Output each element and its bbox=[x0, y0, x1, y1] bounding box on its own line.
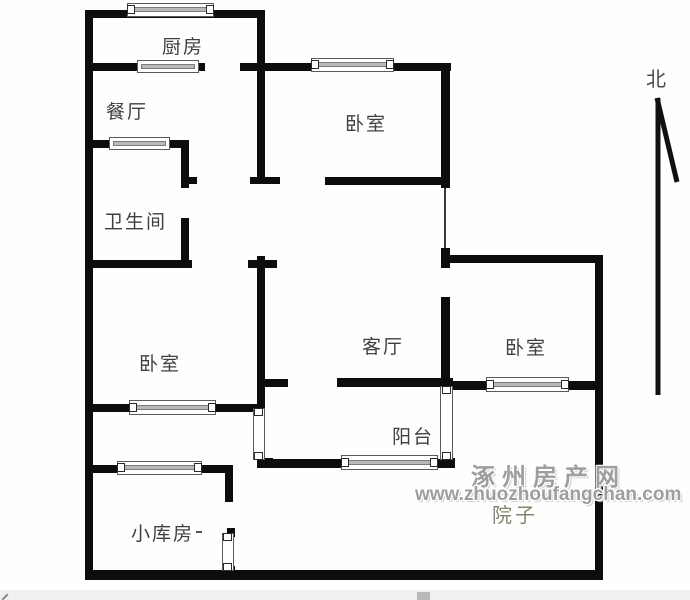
wall-rightwing-top bbox=[450, 255, 603, 263]
window-kitchen-north bbox=[127, 3, 214, 17]
door-frame-storage bbox=[222, 533, 234, 571]
wall-hall-left bbox=[257, 256, 265, 410]
wall-storage-right bbox=[225, 465, 233, 502]
north-label: 北 bbox=[646, 63, 666, 92]
wall-hub-right-stub bbox=[441, 248, 450, 268]
watermark-site-url: www.zhuozhoufangchan.com bbox=[415, 484, 681, 506]
window-balcony-south bbox=[341, 455, 438, 470]
window-bedroomleft bbox=[129, 400, 216, 415]
room-label-bedroom-right: 卧室 bbox=[505, 333, 547, 360]
window-kitchen-south bbox=[137, 60, 199, 73]
wall-balconydoor-left bbox=[265, 379, 288, 387]
wall-hub-right-upper bbox=[441, 63, 450, 188]
wall-hub-right-lower bbox=[441, 297, 450, 385]
wall-tick-hall-top bbox=[250, 177, 280, 184]
small-mark bbox=[196, 531, 202, 533]
wall-bedroomtop-bottom bbox=[325, 177, 450, 185]
wall-outer-bottom bbox=[85, 570, 603, 580]
room-label-dining: 餐厅 bbox=[106, 97, 148, 124]
wall-outer-right bbox=[595, 255, 603, 575]
bottom-scrollbar-track[interactable] bbox=[0, 590, 690, 600]
wall-bath-right-upper bbox=[181, 140, 189, 188]
room-label-storage: 小库房 bbox=[131, 519, 194, 546]
room-label-bedroom-top: 卧室 bbox=[345, 109, 387, 136]
north-arrow-icon bbox=[635, 90, 690, 410]
opening-line bbox=[444, 188, 446, 248]
window-storage bbox=[117, 461, 202, 475]
room-label-bedroom-left: 卧室 bbox=[139, 349, 181, 376]
room-label-kitchen: 厨房 bbox=[162, 32, 204, 59]
wall-kitchen-right bbox=[257, 10, 265, 184]
scrollbar-thumb[interactable] bbox=[417, 592, 430, 600]
room-label-bathroom: 卫生间 bbox=[104, 207, 167, 234]
room-label-balcony: 阳台 bbox=[392, 422, 434, 449]
window-bathroom bbox=[109, 137, 170, 150]
wall-outer-left bbox=[85, 10, 93, 580]
window-bedroomright bbox=[486, 377, 569, 392]
window-bedroomtop bbox=[311, 58, 394, 72]
floor-plan-canvas: 厨房 餐厅 卫生间 卧室 卧室 客厅 卧室 阳台 小库房 院子 北 涿州房产网 … bbox=[0, 0, 690, 600]
window-balcony-west bbox=[253, 408, 265, 460]
window-balcony-east bbox=[440, 386, 453, 460]
wall-tick-bath-door bbox=[189, 177, 197, 184]
wall-living-balcony bbox=[337, 378, 443, 387]
wall-bath-bottom bbox=[85, 260, 192, 268]
room-label-living: 客厅 bbox=[362, 332, 404, 359]
